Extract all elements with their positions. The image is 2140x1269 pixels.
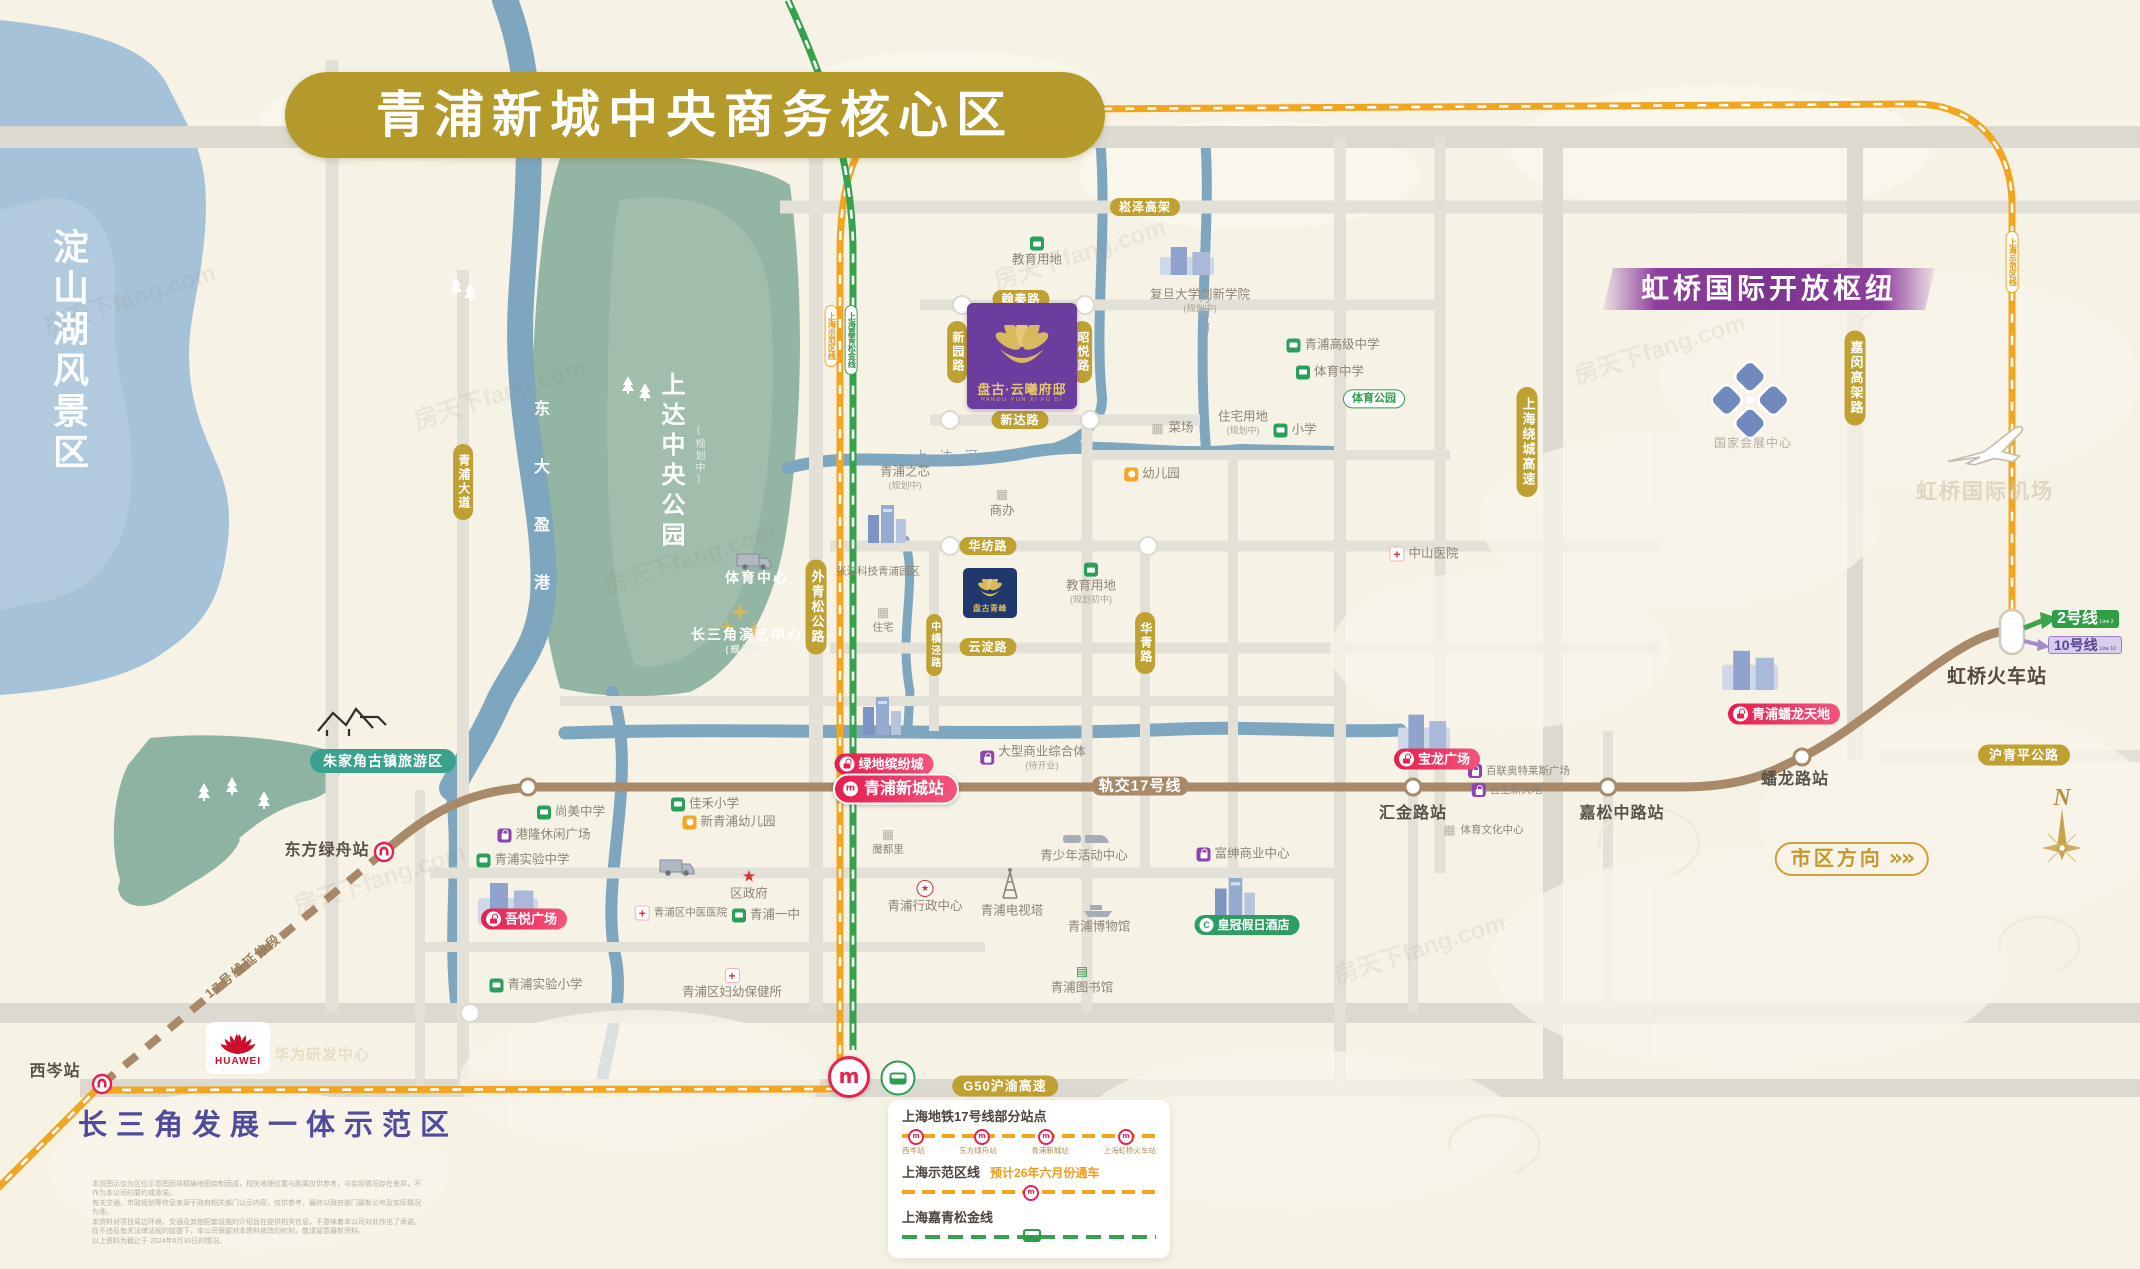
dianshan-lake-label: 淀山湖风景区: [50, 228, 86, 474]
panlong-tiandi-illustration: [1722, 651, 1778, 690]
disclaimer-line: 在不违反有关法律法规的前提下，本公司保留对本资料修改的权利，敬请留意最新资料。: [92, 1227, 422, 1236]
huqingping-highway-label: 沪青平公路: [1978, 745, 2070, 766]
school-icon: [671, 797, 685, 811]
bagw-icon: [486, 912, 501, 927]
school-icon: [1084, 563, 1098, 577]
poi-qingpu-zhixin: 青浦之芯(规划中): [880, 465, 930, 492]
xinda-road-label: 新达路: [991, 411, 1048, 429]
school-icon: [1273, 423, 1287, 437]
school-icon: [537, 805, 551, 819]
qingpu-avenue-label: 青浦大道: [453, 444, 473, 520]
mianyanghe-river-label: 沔阳河: [1198, 292, 1209, 337]
double-chevron-icon: »»: [1889, 848, 1913, 870]
city-direction: 市区方向 »»: [1775, 842, 1929, 876]
huaqing-road-label: 华青路: [1135, 612, 1155, 674]
legend-sfq-sample: [902, 1185, 1156, 1200]
hosp-icon: [635, 906, 650, 921]
zhonghengjing-road-label: 中横泾路: [926, 614, 942, 676]
hongqiao-banner-text: 虹桥国际开放枢纽: [1641, 275, 1897, 303]
dongfanglvzhou-station-label: 东方绿舟站: [284, 843, 369, 859]
school-icon: [1296, 365, 1310, 379]
legend-roundel-1: [908, 1129, 924, 1145]
disclaimer-line: 本页图示仅为区位示意图而非精确地图绘制而成，相关地理位置与距离仅供参考，与实际情…: [92, 1180, 422, 1199]
poi-admin-center: 青浦行政中心: [887, 880, 962, 914]
poi-sports-culture-center: 体育文化中心: [1443, 823, 1524, 837]
zhujiajiao-area-pill: 朱家角古镇旅游区: [310, 749, 456, 773]
bldg-icon: [1443, 823, 1457, 837]
xinyuan-road-label: 新园路: [947, 321, 967, 383]
changsanjiao-zone-label: 长三角发展一体示范区: [78, 1112, 458, 1141]
wuyue-mall-pill: 吾悦广场: [481, 909, 567, 930]
poi-residential-land: 住宅用地(规划中): [1218, 410, 1268, 437]
dianshan-lake-shape: [0, 20, 229, 695]
huawei-rd-faint-label: 华为研发中心: [274, 1048, 370, 1063]
legend-jqsj-title: 上海嘉青松金线: [902, 1211, 1156, 1224]
poi-maternal-care: 青浦区妇幼保健所: [682, 968, 782, 1000]
raocheng-expressway-label: 上海绕城高速: [1517, 387, 1538, 497]
poi-tv-tower: 青浦电视塔: [981, 904, 1044, 919]
legend-roundel-2: [974, 1129, 990, 1145]
legend-sfq-note: 预计26年六月份通车: [990, 1167, 1099, 1179]
poi-ganglong-plaza: 港隆休闲广场: [497, 828, 590, 843]
hongqiao-banner: 虹桥国际开放枢纽: [1603, 268, 1935, 310]
poi-sports-center: 体育中心: [725, 570, 789, 587]
jiamin-elevated-label: 嘉闵高架路: [1845, 331, 1866, 426]
bldg-icon: [995, 488, 1009, 502]
poi-residence: 住宅: [873, 606, 894, 635]
legend-station-xincheng: 青浦新城站: [1031, 1147, 1069, 1155]
school-icon: [476, 853, 490, 867]
waiqingsong-highway-label: 外青松公路: [806, 560, 827, 655]
poi-fushen-center: 富绅商业中心: [1196, 847, 1289, 862]
rdl-icon: [841, 780, 860, 799]
lib-icon: [1075, 965, 1089, 979]
disclaimer-text: 本页图示仅为区位示意图而非精确地图绘制而成，相关地理位置与距离仅供参考，与实际情…: [92, 1180, 422, 1246]
youth-center-train-illustration: [1063, 835, 1109, 843]
poi-education-land-2: 教育用地(规划初中): [1066, 563, 1116, 606]
legend-sfq-title: 上海示范区线 预计26年六月份通车: [902, 1166, 1156, 1179]
jiasongzhong-station-label: 嘉松中路站: [1579, 806, 1664, 822]
disclaimer-line: 本资料对项目周边环境、交通及其他配套设施的介绍旨在提供相关信息，不意味着本公司对…: [92, 1218, 422, 1227]
poi-district-gov: 区政府: [730, 871, 768, 902]
xincheng-station-pill: 青浦新城站: [833, 774, 959, 805]
poi-market: 菜场: [1150, 421, 1193, 436]
huijin-station-label: 汇金路站: [1379, 806, 1447, 822]
shopp-icon: [497, 828, 511, 842]
hongqiao-station-capsule: [2000, 610, 2024, 654]
sfq-line-pill-right: 上海示范区线: [2006, 231, 2019, 293]
title-banner: 青浦新城中央商务核心区: [285, 72, 1105, 158]
poi-zhongshan-hospital: 中山医院: [1389, 547, 1458, 562]
legend-line17-sample: [902, 1129, 1156, 1144]
zhangjiang-towers-illustration: [868, 505, 906, 543]
bagw-icon: [1733, 707, 1748, 722]
dongfanglvzhou-station-roundel: [375, 843, 393, 861]
lvdi-mall-pill: 绿地缤纷城: [834, 754, 933, 775]
poi-kindergarten: 幼儿园: [1124, 467, 1180, 482]
poi-qingpu-exp-primary: 青浦实验小学: [489, 978, 582, 993]
poi-sports-park: 体育公园: [1343, 389, 1405, 408]
poi-education-land-1: 教育用地: [1012, 237, 1062, 268]
poi-zhangjiang-park: 张江科技青浦园区: [836, 566, 920, 579]
poi-office: 商办: [989, 488, 1014, 519]
line17-on-map-label: 轨交17号线: [1092, 777, 1189, 796]
compass-north-label: N: [2053, 786, 2070, 810]
legend-jqsj-title-text: 上海嘉青松金线: [902, 1211, 993, 1224]
legend-roundel-4: [1118, 1129, 1134, 1145]
legend-station-dongfanglvzhou: 东方绿舟站: [959, 1147, 997, 1155]
cw-icon: [1199, 918, 1213, 932]
poi-qingpu-exp-middle: 青浦实验中学: [476, 853, 569, 868]
pangu-mansion-block: 盘古·云曦府邸 PANGU YUN XI FU DI: [967, 303, 1077, 409]
hosp-icon: [1389, 547, 1404, 562]
songze-elevated-label: 崧泽高架: [1110, 198, 1180, 216]
shopp-icon: [1472, 783, 1486, 797]
bagw-icon: [1399, 752, 1414, 767]
map-canvas: 盘古·云曦府邸 PANGU YUN XI FU DI 盘古青峰 青浦新城中央商务…: [0, 0, 2140, 1269]
map-artwork: [0, 0, 2140, 1269]
crowne-towers-illustration: [1215, 878, 1255, 918]
pangu-mansion-latin: PANGU YUN XI FU DI: [981, 398, 1063, 404]
poi-primary-school: 小学: [1273, 423, 1316, 438]
star-icon: [742, 871, 756, 885]
school-icon: [1286, 338, 1300, 352]
legend-jqsj-sample: [902, 1230, 1156, 1245]
g50-expressway-label: G50沪渝高速: [952, 1076, 1058, 1097]
pangu-peak-name: 盘古青峰: [973, 605, 1007, 613]
bldg-icon: [876, 606, 890, 620]
line10-sub: Line 10: [2100, 647, 2116, 652]
poi-museum: 青浦博物馆: [1068, 920, 1131, 935]
line2-label: 2号线: [2057, 611, 2098, 627]
legend-roundel-3: [1038, 1129, 1054, 1145]
poi-moduli: 魔都里: [872, 828, 904, 857]
poi-yanyi-center: 长三角演艺中心(规划中): [691, 627, 803, 656]
school-icon: [1030, 237, 1044, 251]
yundian-road-label: 云淀路: [959, 638, 1016, 656]
disclaimer-line: 以上资料为截止于 2024年6月30日的情况。: [92, 1237, 422, 1246]
jqsj-line-pill: 上海嘉青松金线: [845, 305, 858, 375]
bagw-icon: [839, 757, 854, 772]
poi-qingpu-no1-middle: 青浦一中: [732, 908, 800, 923]
sfq-line-pill-left: 上海示范区线: [825, 305, 838, 367]
poi-bailian-outlets: 百联奥特莱斯广场: [1468, 764, 1570, 778]
poi-qingpu-senior-high: 青浦高级中学: [1286, 338, 1379, 353]
poi-new-qingpu-kind: 新青浦幼儿园: [682, 815, 775, 830]
kind-icon: [682, 815, 696, 829]
shangda-park-label: 上达中央公园: [658, 372, 682, 552]
metro-roundel-badge: [828, 1056, 870, 1098]
poi-jiahe-primary: 佳禾小学: [671, 797, 739, 812]
title-text: 青浦新城中央商务核心区: [376, 90, 1014, 140]
hongqiao-railway-station-label: 虹桥火车站: [1947, 668, 2047, 687]
disclaimer-line: 有关交通、市政规划等信息来源于政府相关部门公示内容，仅供参考，最终以政府部门最新…: [92, 1199, 422, 1218]
kind-icon: [1124, 467, 1138, 481]
pangu-peak-block: 盘古青峰: [963, 568, 1017, 618]
peninsula-green-shape: [114, 735, 340, 906]
poi-shangmei-middle: 尚美中学: [537, 805, 605, 820]
bldg-icon: [1150, 421, 1164, 435]
panlong-tiandi-pill: 青浦蟠龙天地: [1728, 704, 1840, 725]
legend-box: 上海地铁17号线部分站点 西岑站 东方绿舟站 青浦新城站 上海虹桥火车站 上海示…: [888, 1100, 1170, 1258]
city-direction-text: 市区方向: [1791, 849, 1883, 869]
legend-line17-title: 上海地铁17号线部分站点: [902, 1110, 1156, 1123]
hongqiao-airport-faint-label: 虹桥国际机场: [1916, 482, 2054, 503]
shangda-park-plan-label: (规划中): [693, 425, 703, 487]
pangu-mansion-name: 盘古·云曦府邸: [977, 383, 1066, 396]
shangdahe-river-label: 上达河: [914, 450, 989, 463]
dongdayinggang-river-label: 东大盈港: [531, 400, 547, 632]
legend-sfq-roundel: [1023, 1185, 1039, 1201]
poi-library: 青浦图书馆: [1051, 965, 1114, 996]
poi-tiyu-middle-school: 体育中学: [1296, 365, 1364, 380]
poi-tcm-hospital: 青浦区中医医院: [635, 906, 728, 921]
lotus-icon: [987, 325, 1057, 383]
shopp-icon: [980, 751, 994, 765]
bus-icon: [890, 1072, 907, 1084]
legend-line17-title-text: 上海地铁17号线部分站点: [902, 1110, 1046, 1123]
legend-bus-icon: [1023, 1229, 1041, 1242]
panlonglu-station-label: 蟠龙路站: [1761, 772, 1829, 788]
line2-sub: Line 2: [2100, 620, 2114, 625]
shopp-icon: [1196, 847, 1210, 861]
poi-mega-mall: 大型商业综合体(待开业): [980, 745, 1086, 772]
poi-hesheng-xintiandi: 合生新天地: [1472, 783, 1543, 797]
crowne-plaza-pill: 皇冠假日酒店: [1194, 915, 1299, 935]
xicen-station-label: 西岑站: [29, 1064, 80, 1080]
huafang-road-label: 华纺路: [959, 537, 1016, 555]
baolong-mall-pill: 宝龙广场: [1394, 749, 1480, 770]
line2-badge: 2号线 Line 2: [2052, 610, 2119, 628]
huawei-logo-word: HUAWEI: [215, 1057, 261, 1067]
bus-badge: [881, 1061, 916, 1096]
legend-station-hongqiao: 上海虹桥火车站: [1103, 1147, 1156, 1155]
bldg-icon: [881, 828, 895, 842]
starc-icon: [916, 880, 933, 897]
legend-sfq-title-text: 上海示范区线: [902, 1166, 980, 1179]
poi-youth-center: 青少年活动中心: [1040, 849, 1128, 864]
xicen-station-roundel: [93, 1075, 111, 1093]
legend-station-names: 西岑站 东方绿舟站 青浦新城站 上海虹桥火车站: [902, 1147, 1156, 1155]
school-icon: [489, 978, 503, 992]
line10-badge: 10号线 Line 10: [2048, 636, 2122, 654]
line10-label: 10号线: [2054, 638, 2098, 652]
lotus-icon-small: [973, 579, 1007, 605]
school-icon: [732, 908, 746, 922]
legend-station-xicen: 西岑站: [902, 1147, 925, 1155]
hosp-icon: [724, 968, 739, 983]
necc-label: 国家会展中心: [1714, 437, 1792, 449]
